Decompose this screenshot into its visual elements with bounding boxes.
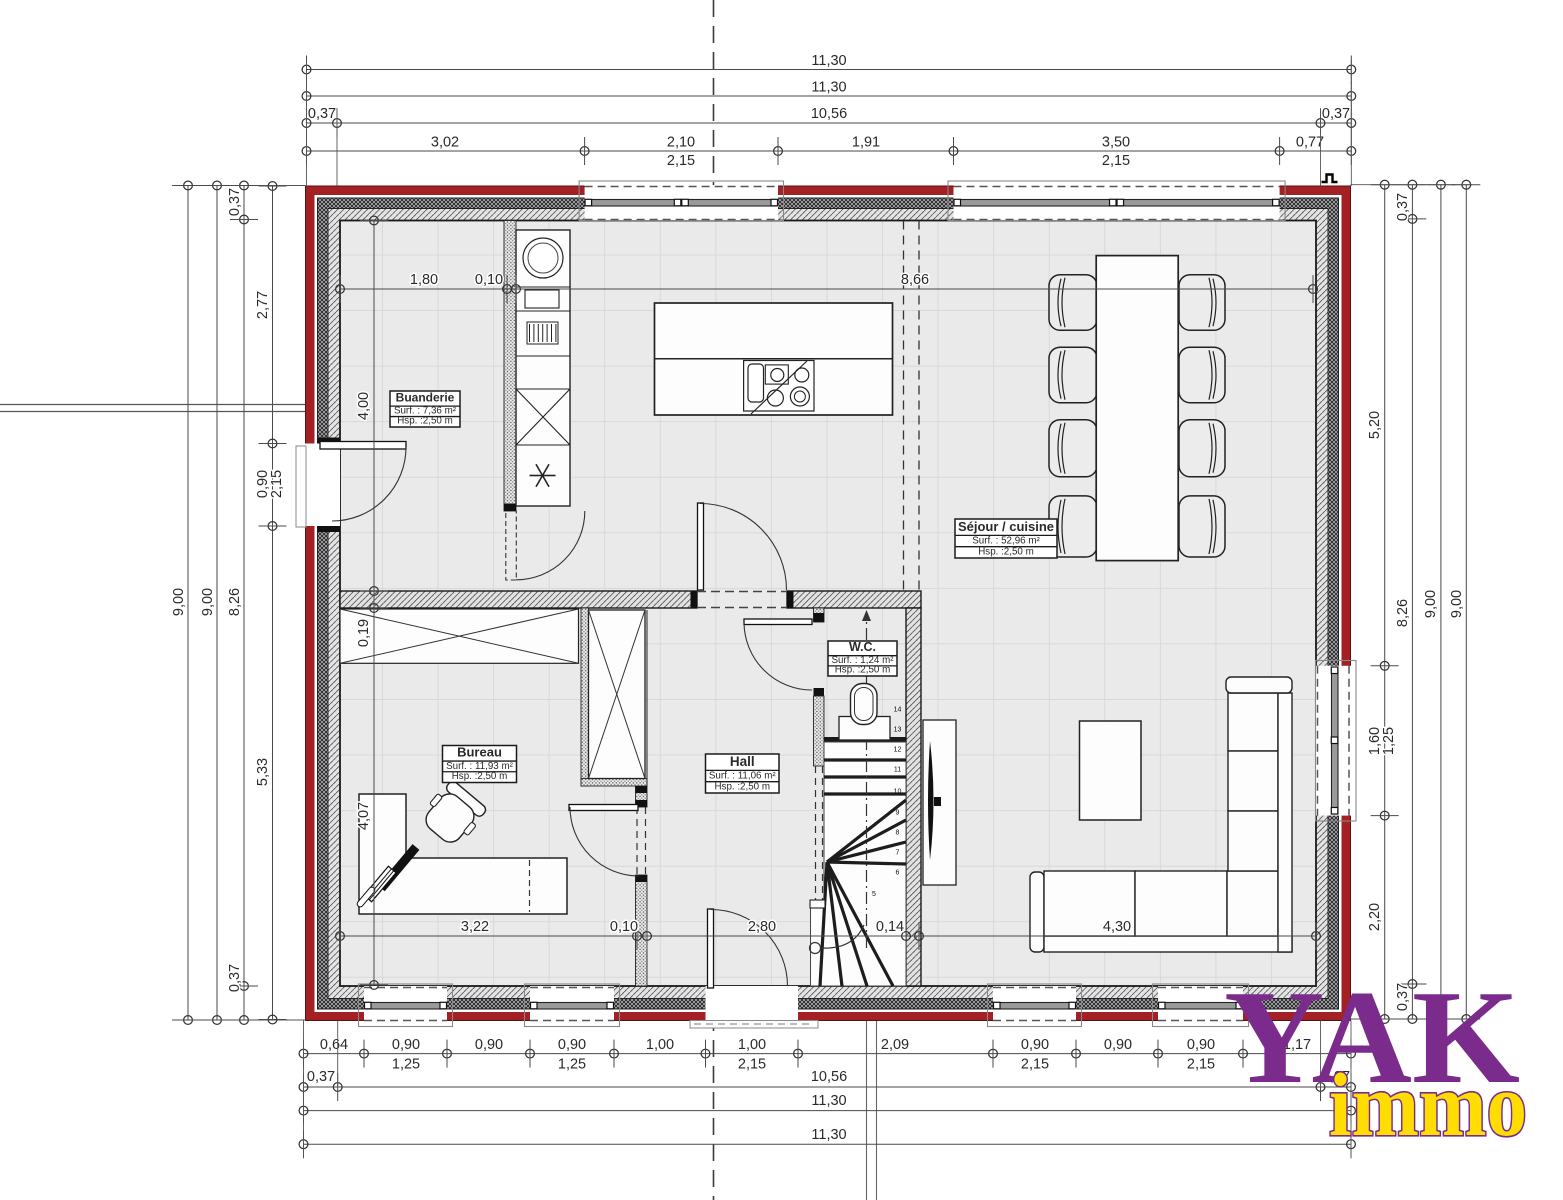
svg-text:Hsp. :2,50 m: Hsp. :2,50 m <box>978 547 1034 558</box>
svg-text:3,50: 3,50 <box>1102 135 1130 151</box>
svg-text:2,80: 2,80 <box>748 919 776 935</box>
svg-text:0,37: 0,37 <box>227 964 243 992</box>
svg-text:0,64: 0,64 <box>320 1037 348 1053</box>
svg-text:0,10: 0,10 <box>610 919 638 935</box>
svg-text:Hall: Hall <box>730 754 755 769</box>
svg-text:13: 13 <box>894 727 902 734</box>
svg-text:9: 9 <box>896 810 900 817</box>
svg-text:Hsp. :2,50 m: Hsp. :2,50 m <box>397 416 453 427</box>
svg-text:9,00: 9,00 <box>200 588 216 616</box>
svg-text:1,91: 1,91 <box>852 135 880 151</box>
svg-text:0,37: 0,37 <box>1395 193 1411 221</box>
svg-text:Séjour / cuisine: Séjour / cuisine <box>958 519 1054 534</box>
svg-text:3,02: 3,02 <box>431 135 459 151</box>
svg-text:0,37: 0,37 <box>307 1069 335 1085</box>
svg-text:0,37: 0,37 <box>1322 106 1350 122</box>
svg-text:Hsp. :2,50 m: Hsp. :2,50 m <box>835 665 891 676</box>
svg-text:5,33: 5,33 <box>255 758 271 786</box>
svg-text:0,37: 0,37 <box>308 106 336 122</box>
svg-text:8,26: 8,26 <box>1395 599 1411 627</box>
svg-text:0,37: 0,37 <box>227 188 243 216</box>
svg-text:1,80: 1,80 <box>410 272 438 288</box>
svg-text:5: 5 <box>872 891 876 898</box>
svg-text:W.C.: W.C. <box>849 640 876 654</box>
svg-text:immo: immo <box>1329 1056 1527 1155</box>
svg-text:3,22: 3,22 <box>461 919 489 935</box>
svg-text:1,00: 1,00 <box>738 1037 766 1053</box>
svg-text:1,25: 1,25 <box>558 1057 586 1073</box>
svg-text:0,77: 0,77 <box>1296 135 1324 151</box>
svg-text:Surf. : 52,96 m²: Surf. : 52,96 m² <box>972 536 1040 547</box>
svg-text:0,90: 0,90 <box>1021 1037 1049 1053</box>
svg-text:0,10: 0,10 <box>475 272 503 288</box>
svg-text:5,20: 5,20 <box>1367 411 1383 439</box>
svg-text:0,90: 0,90 <box>1104 1037 1132 1053</box>
svg-text:7: 7 <box>896 850 900 857</box>
svg-text:6: 6 <box>896 870 900 877</box>
svg-text:4,07: 4,07 <box>356 802 372 830</box>
svg-text:2,15: 2,15 <box>1102 153 1130 169</box>
svg-text:11: 11 <box>894 767 901 774</box>
svg-text:0,90: 0,90 <box>1187 1037 1215 1053</box>
svg-text:2,15: 2,15 <box>667 153 695 169</box>
svg-text:Hsp. :2,50 m: Hsp. :2,50 m <box>714 782 770 793</box>
svg-text:1,25: 1,25 <box>392 1057 420 1073</box>
svg-text:11,30: 11,30 <box>811 1127 846 1143</box>
svg-text:2,20: 2,20 <box>1367 903 1383 931</box>
svg-text:0,90: 0,90 <box>558 1037 586 1053</box>
svg-text:14: 14 <box>894 707 902 714</box>
svg-text:2,15: 2,15 <box>1187 1057 1215 1073</box>
svg-text:11,30: 11,30 <box>811 53 846 69</box>
svg-text:9,00: 9,00 <box>1449 590 1465 618</box>
svg-text:2,77: 2,77 <box>255 291 271 319</box>
svg-text:10,56: 10,56 <box>811 106 847 122</box>
svg-text:11,30: 11,30 <box>811 1093 846 1109</box>
svg-text:2,15: 2,15 <box>269 470 285 498</box>
svg-text:4,30: 4,30 <box>1103 919 1131 935</box>
svg-text:2,15: 2,15 <box>738 1057 766 1073</box>
svg-text:10: 10 <box>894 789 902 796</box>
svg-text:0,90: 0,90 <box>392 1037 420 1053</box>
svg-text:0,90: 0,90 <box>475 1037 503 1053</box>
svg-text:Bureau: Bureau <box>457 745 502 760</box>
svg-text:0,19: 0,19 <box>356 619 372 647</box>
svg-text:12: 12 <box>894 747 902 754</box>
svg-text:11,30: 11,30 <box>811 80 846 96</box>
svg-text:2,15: 2,15 <box>1021 1057 1049 1073</box>
svg-text:8,26: 8,26 <box>227 588 243 616</box>
svg-text:8: 8 <box>896 830 900 837</box>
svg-text:Surf. : 11,06 m²: Surf. : 11,06 m² <box>709 771 777 782</box>
svg-text:1,25: 1,25 <box>1381 727 1397 755</box>
svg-text:9,00: 9,00 <box>1423 590 1439 618</box>
svg-text:4,00: 4,00 <box>356 392 372 420</box>
svg-text:Buanderie: Buanderie <box>396 391 455 405</box>
svg-text:8,66: 8,66 <box>901 272 929 288</box>
svg-text:Hsp. :2,50 m: Hsp. :2,50 m <box>452 771 508 782</box>
svg-text:9,00: 9,00 <box>171 588 187 616</box>
svg-text:2,10: 2,10 <box>667 135 695 151</box>
svg-text:10,56: 10,56 <box>811 1069 847 1085</box>
svg-text:0,14: 0,14 <box>876 919 904 935</box>
svg-text:1,00: 1,00 <box>646 1037 674 1053</box>
svg-text:2,09: 2,09 <box>881 1037 909 1053</box>
